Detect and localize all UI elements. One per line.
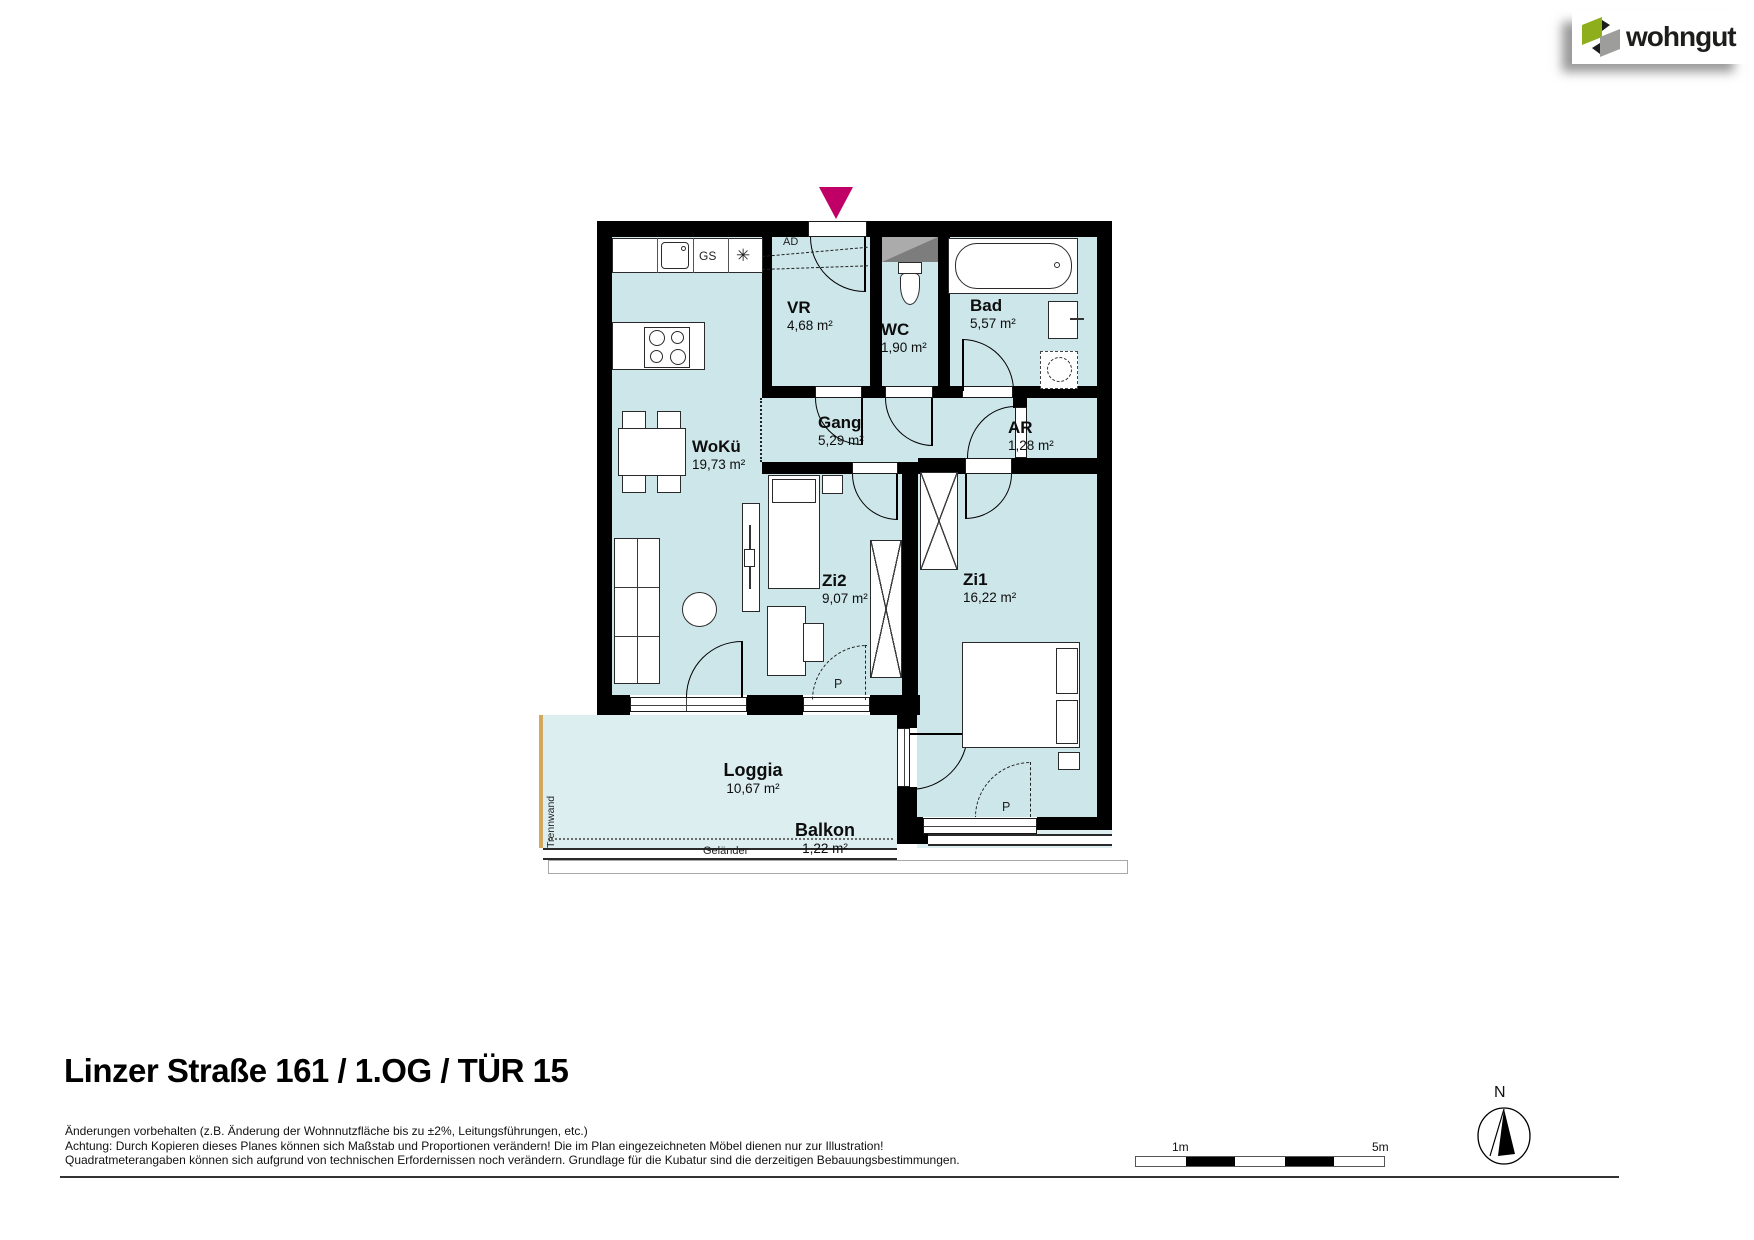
washing-machine-drum (1047, 357, 1072, 382)
wall-spine-vr (762, 386, 815, 398)
room-label-bad: Bad 5,57 m² (970, 296, 1016, 332)
woku-gang-open-boundary (760, 398, 762, 462)
wall-top-right (867, 221, 1112, 237)
trennwand-label: Trennwand (545, 758, 557, 848)
zi2-desk-chair (803, 623, 824, 662)
zi1-window-band (923, 818, 1037, 834)
room-label-vr: VR 4,68 m² (787, 298, 833, 334)
washbasin (1048, 301, 1078, 339)
freezer-icon: ✳ (736, 246, 750, 266)
floorplan-page: AD GS ✳ Trennwand (0, 0, 1754, 1240)
sofa (614, 538, 660, 684)
disclaimer-line-1: Änderungen vorbehalten (z.B. Änderung de… (65, 1124, 960, 1139)
bad-door-leaf (962, 339, 964, 391)
wall-top-left (597, 221, 808, 237)
plan-title: Linzer Straße 161 / 1.OG / TÜR 15 (64, 1052, 568, 1090)
wohngut-logo: wohngut (1572, 10, 1748, 64)
disclaimer-line-2: Achtung: Durch Kopieren dieses Planes kö… (65, 1139, 960, 1154)
tv-box (744, 549, 755, 567)
scalebar-seg-3 (1235, 1157, 1285, 1166)
vr-gang-door-band (815, 386, 862, 398)
woku-window-band (630, 697, 747, 712)
wall-zi2-zi1 (902, 462, 918, 695)
wohngut-cube-icon (1578, 12, 1624, 62)
zi1-door-band (965, 458, 1012, 474)
counter-divider-3 (728, 238, 729, 273)
dishwasher-label: GS (699, 249, 716, 263)
burner-2 (671, 331, 684, 344)
footer-rule (60, 1176, 1619, 1178)
wc-door-band (885, 386, 933, 398)
side-table (682, 592, 717, 627)
zi2-door-leaf (896, 474, 898, 520)
disclaimer-line-3: Quadratmeterangaben können sich aufgrund… (65, 1153, 960, 1168)
wall-bottom-zi1-b (1037, 817, 1112, 830)
scalebar-5m-label: 5m (1372, 1140, 1389, 1154)
compass-north-label: N (1494, 1084, 1506, 1102)
scalebar-seg-4 (1285, 1157, 1335, 1166)
wall-bottom-zi2 (870, 695, 920, 715)
room-label-loggia: Loggia 10,67 m² (700, 760, 806, 797)
zi2-pillow (772, 479, 816, 503)
wall-spine-cap2 (933, 386, 962, 398)
burner-3 (650, 350, 663, 363)
scalebar-seg-5 (1334, 1157, 1384, 1166)
dining-table (618, 428, 686, 476)
wall-wc-left (870, 237, 882, 388)
zi1-wardrobe (920, 472, 958, 570)
burner-1 (649, 330, 665, 346)
scale-bar (1135, 1156, 1385, 1167)
zi1-french-window-leaf (1030, 762, 1031, 817)
burner-4 (670, 349, 686, 365)
room-label-balkon: Balkon 1,22 m² (770, 820, 880, 857)
ad-label: AD (783, 236, 798, 248)
zi1-balcony-door-leaf (910, 733, 968, 735)
counter-divider-2 (693, 238, 694, 273)
wall-loggia-zi1-upper (897, 715, 917, 728)
dining-chair-4 (657, 475, 681, 493)
zi2-door-band (852, 462, 898, 474)
wall-bottom-woku-b (747, 695, 803, 715)
wc-door-leaf (931, 398, 933, 446)
zi1-balcony-door-band (897, 728, 910, 787)
dining-chair-2 (657, 411, 681, 429)
zi1-pillow-1 (1056, 648, 1078, 694)
sink-faucet-dot (681, 246, 686, 251)
zi1-parapet-label: P (1002, 800, 1010, 814)
wall-zi2-top (762, 462, 852, 474)
scalebar-seg-2 (1186, 1157, 1236, 1166)
zi1-pillow-2 (1056, 700, 1078, 744)
entrance-door-band (808, 221, 867, 237)
zi2-french-window-leaf (865, 645, 866, 700)
installation-shaft (882, 237, 938, 262)
counter-divider-1 (657, 238, 658, 273)
wall-bottom-woku-a (597, 695, 630, 715)
zi1-door-leaf (965, 474, 967, 519)
wall-spine-cap1 (862, 386, 885, 398)
balkon-railing (928, 834, 1112, 846)
scalebar-seg-1 (1136, 1157, 1186, 1166)
zi2-wardrobe (870, 540, 902, 678)
room-label-woku: WoKü 19,73 m² (692, 437, 745, 473)
wall-left (597, 221, 612, 715)
room-label-wc: WC 1,90 m² (881, 320, 927, 356)
dining-chair-3 (622, 475, 646, 493)
wall-dogleg-b (1012, 458, 1112, 474)
wall-bottom-zi1-a (897, 817, 923, 830)
scalebar-1m-label: 1m (1172, 1140, 1189, 1154)
entrance-arrow-icon (819, 187, 853, 219)
zi2-desk (767, 606, 806, 676)
wall-vr-left (762, 237, 772, 398)
wohngut-logo-text: wohngut (1626, 21, 1736, 53)
zi1-nightstand (1058, 752, 1080, 770)
room-label-zi1: Zi1 16,22 m² (963, 570, 1016, 606)
room-label-ar: AR 1,28 m² (1008, 418, 1054, 454)
washbasin-faucet (1070, 318, 1084, 320)
disclaimer-text: Änderungen vorbehalten (z.B. Änderung de… (65, 1124, 960, 1168)
trennwand-partition (539, 715, 543, 848)
gelaender-label: Geländer (703, 845, 748, 857)
loggia-outer-step (548, 860, 1128, 874)
compass-icon (1476, 1104, 1532, 1168)
bathtub-drain (1054, 262, 1060, 268)
room-label-zi2: Zi2 9,07 m² (822, 571, 868, 607)
zi2-parapet-label: P (834, 677, 842, 691)
room-label-gang: Gang 5,29 m² (818, 413, 864, 449)
woku-balcony-door-leaf (741, 641, 743, 697)
zi2-nightstand (822, 475, 843, 494)
dining-chair-1 (622, 411, 646, 429)
wall-right (1097, 221, 1112, 830)
